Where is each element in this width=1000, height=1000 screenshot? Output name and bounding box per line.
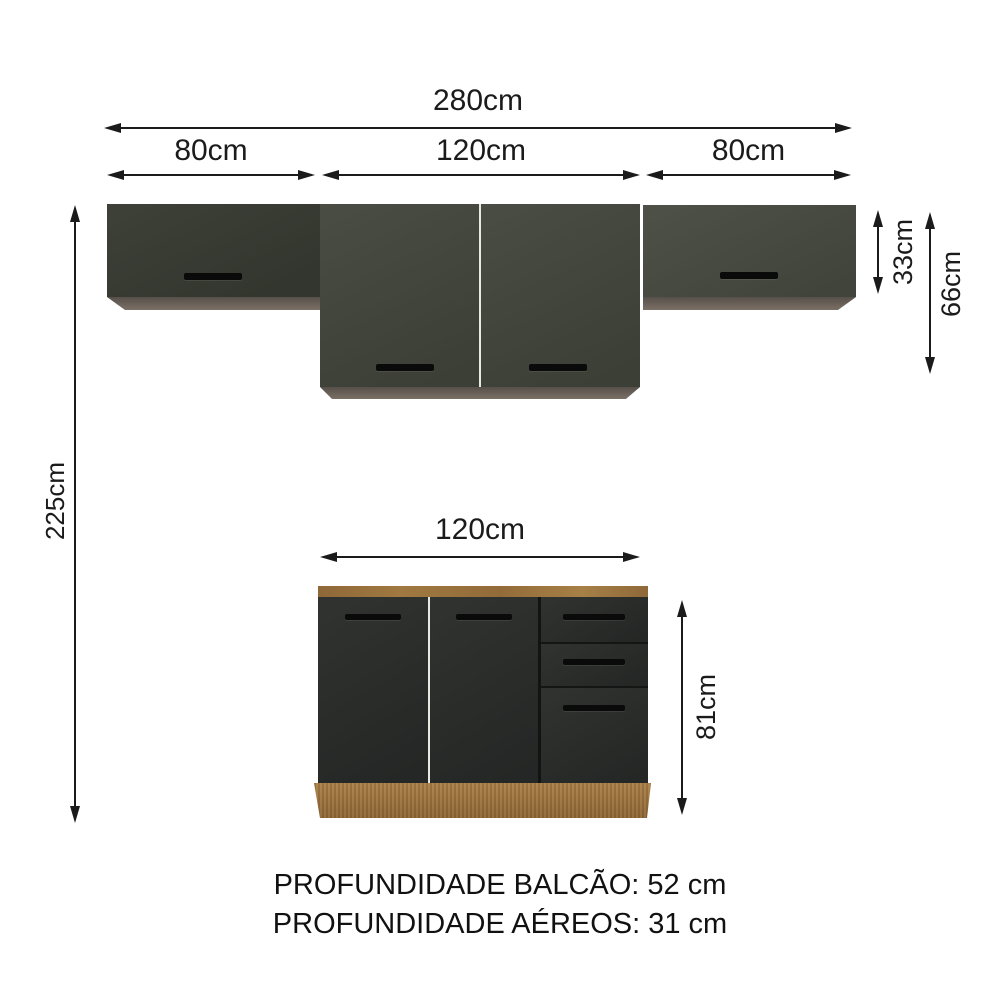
dim-label-upper-side-height: 33cm	[888, 202, 918, 302]
upper-cabinet-right	[643, 205, 856, 310]
arrow-shaft	[877, 213, 879, 291]
drawer-stack	[541, 597, 648, 783]
furniture-dimension-diagram: 280cm 80cm 120cm 80cm 33cm 66cm 225cm	[0, 0, 1000, 1000]
plinth	[314, 783, 651, 818]
dim-arrow-counter-height	[676, 600, 688, 815]
cabinet-bottom-edge	[320, 387, 640, 399]
drawer-handle	[563, 614, 625, 620]
cabinet-bottom-edge	[107, 297, 320, 310]
depth-note-balcao: PROFUNDIDADE BALCÃO: 52 cm	[0, 866, 1000, 905]
cabinet-door	[481, 204, 640, 387]
arrow-shaft	[649, 174, 848, 176]
door-handle	[456, 614, 512, 620]
drawer	[541, 688, 648, 783]
arrow-shaft	[74, 208, 76, 820]
cabinet-door	[430, 597, 538, 783]
drawer-handle	[563, 705, 625, 711]
depth-notes: PROFUNDIDADE BALCÃO: 52 cm PROFUNDIDADE …	[0, 866, 1000, 944]
dim-arrow-counter-width	[320, 551, 640, 563]
cabinet-door	[107, 204, 320, 297]
drawer-handle	[563, 659, 625, 665]
dim-label-upper-center-height: 66cm	[936, 234, 966, 334]
cabinet-door	[320, 204, 479, 387]
drawer	[541, 597, 648, 644]
dim-label-counter-width: 120cm	[320, 513, 640, 547]
dim-arrow-segment-80-right	[646, 169, 851, 181]
arrow-shaft	[107, 127, 849, 129]
dim-label-total-width: 280cm	[104, 84, 852, 118]
dim-label-segment-80-right: 80cm	[646, 134, 851, 168]
counter-top-edge	[318, 586, 648, 597]
dim-arrow-segment-120	[322, 169, 640, 181]
door-handle	[184, 273, 242, 280]
cabinet-door	[643, 205, 856, 297]
drawer	[541, 644, 648, 688]
door-handle	[720, 272, 778, 279]
dim-arrow-upper-center-height	[924, 212, 936, 374]
dim-arrow-overall-height	[69, 205, 81, 823]
depth-note-aereos: PROFUNDIDADE AÉREOS: 31 cm	[0, 905, 1000, 944]
arrow-shaft	[323, 556, 637, 558]
arrow-shaft	[681, 603, 683, 812]
upper-cabinet-left	[107, 204, 320, 310]
arrow-shaft	[929, 215, 931, 371]
dim-label-segment-80-left: 80cm	[107, 134, 315, 168]
arrow-shaft	[325, 174, 637, 176]
dim-arrow-total-width	[104, 122, 852, 134]
base-cabinet	[318, 586, 648, 783]
arrow-shaft	[110, 174, 312, 176]
upper-cabinet-center	[320, 204, 640, 399]
door-handle	[529, 364, 587, 371]
dim-arrow-upper-side-height	[872, 210, 884, 294]
dim-label-overall-height: 225cm	[41, 441, 69, 561]
dim-label-counter-height: 81cm	[692, 657, 720, 757]
dim-label-segment-120: 120cm	[322, 134, 640, 168]
cabinet-door	[318, 597, 428, 783]
door-handle	[376, 364, 434, 371]
base-cabinet-front	[318, 597, 648, 783]
cabinet-bottom-edge	[643, 297, 856, 310]
door-handle	[345, 614, 401, 620]
dim-arrow-segment-80-left	[107, 169, 315, 181]
